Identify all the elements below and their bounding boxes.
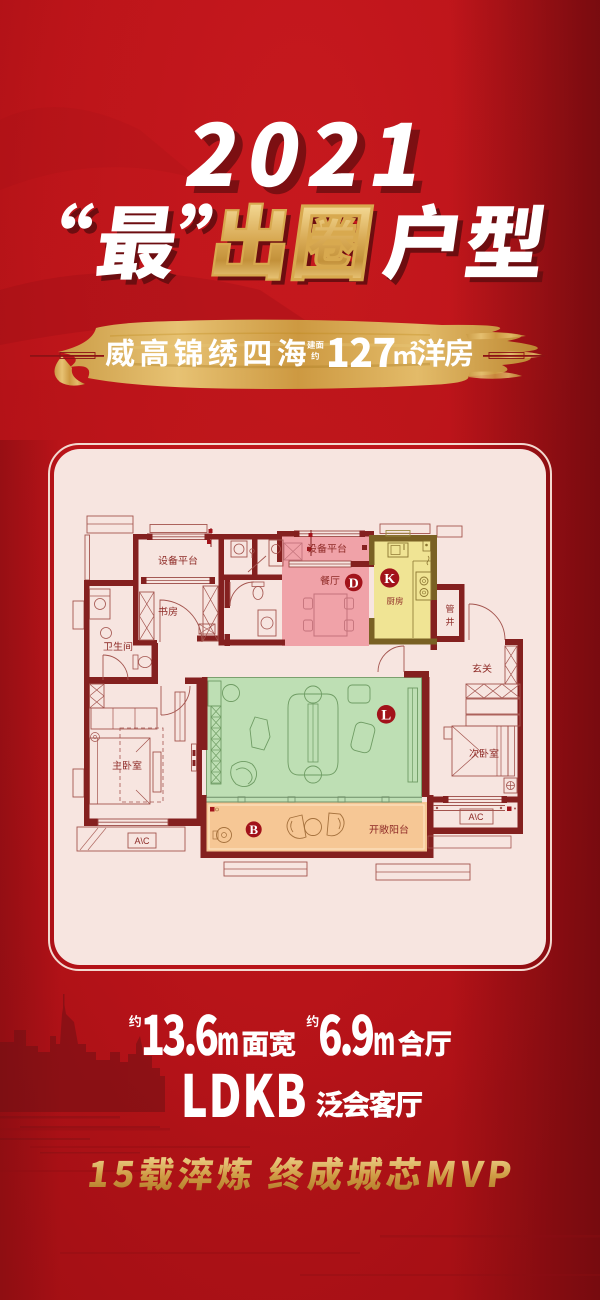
svg-text:A\C: A\C bbox=[134, 836, 150, 846]
svg-text:D: D bbox=[349, 576, 359, 591]
svg-text:A\C: A\C bbox=[468, 812, 484, 822]
svg-text:K: K bbox=[384, 572, 395, 587]
svg-text:B: B bbox=[249, 822, 258, 837]
svg-text:L: L bbox=[381, 707, 391, 723]
